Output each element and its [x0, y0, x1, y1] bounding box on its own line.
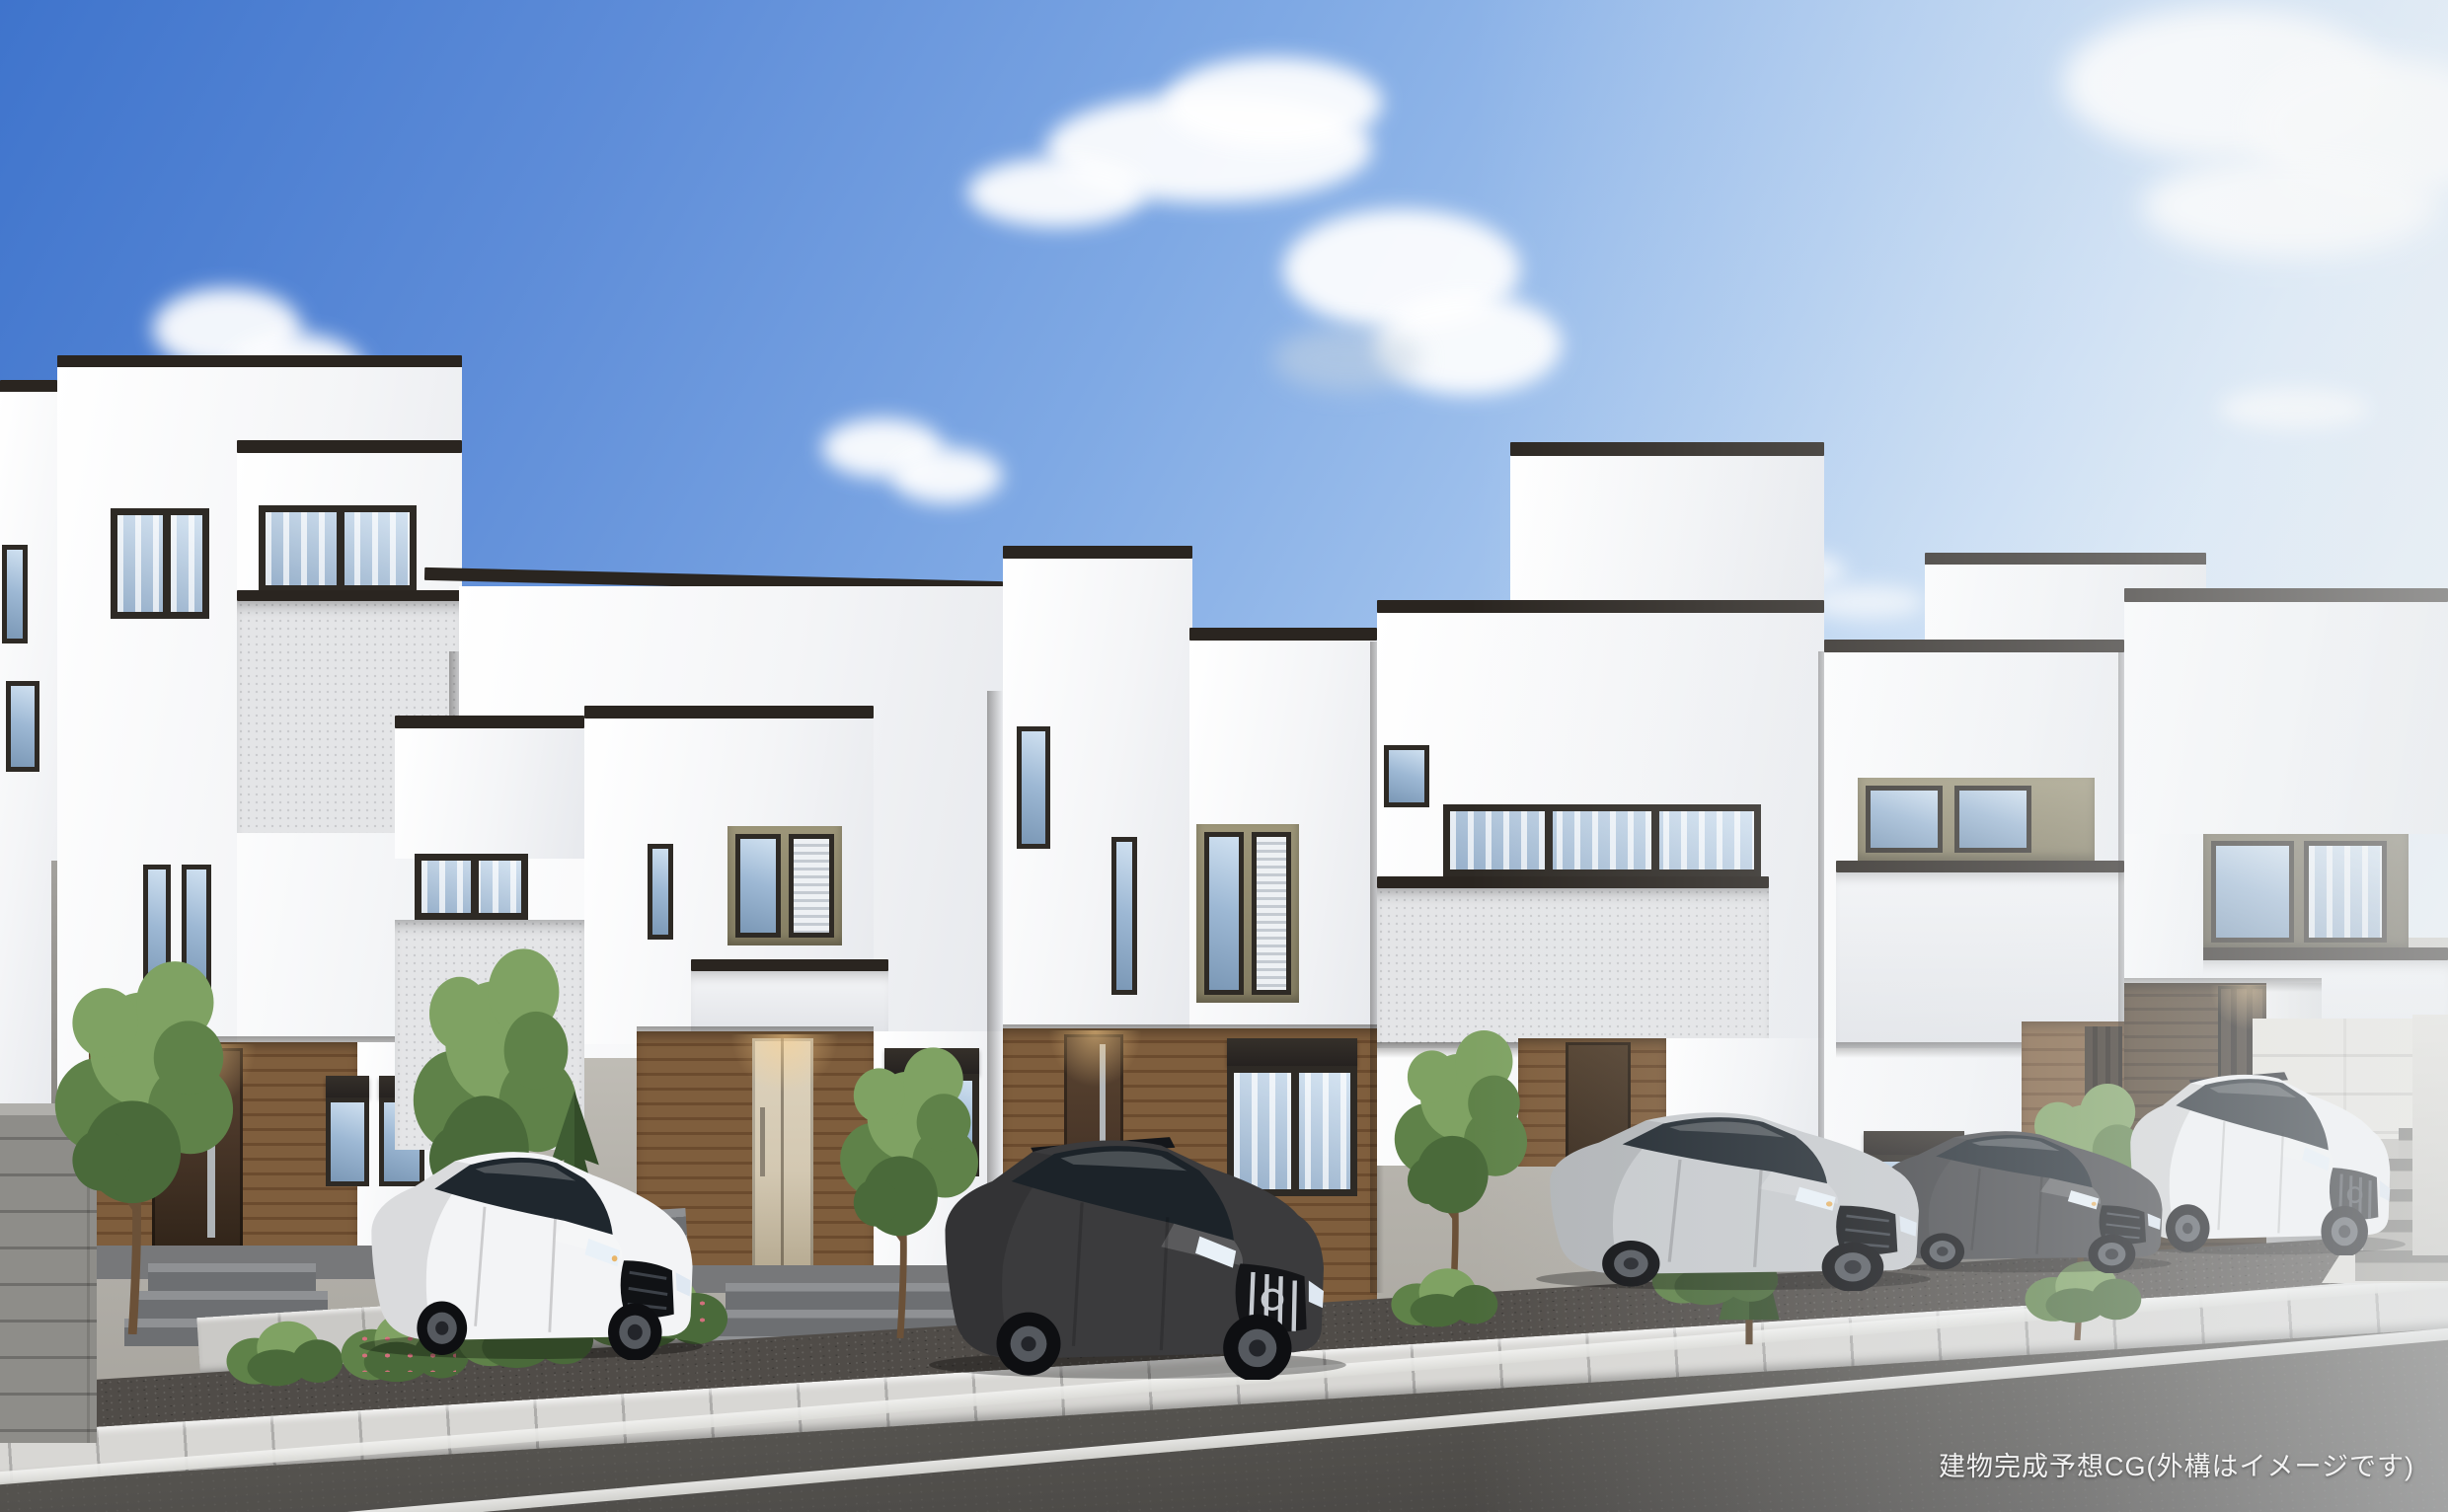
tree [43, 904, 237, 1334]
cg-rendering-scene: 建物完成予想CG(外構はイメージです) [0, 0, 2448, 1512]
car-black-suv [913, 1105, 1362, 1380]
shrub [1390, 1253, 1498, 1328]
car-silver-sedan [1520, 1078, 1947, 1291]
shrub [225, 1305, 344, 1388]
concrete-pillar-right [2412, 1015, 2448, 1255]
car-white-sedan [345, 1111, 717, 1360]
disclaimer-caption: 建物完成予想CG(外構はイメージです) [1939, 1445, 2414, 1483]
